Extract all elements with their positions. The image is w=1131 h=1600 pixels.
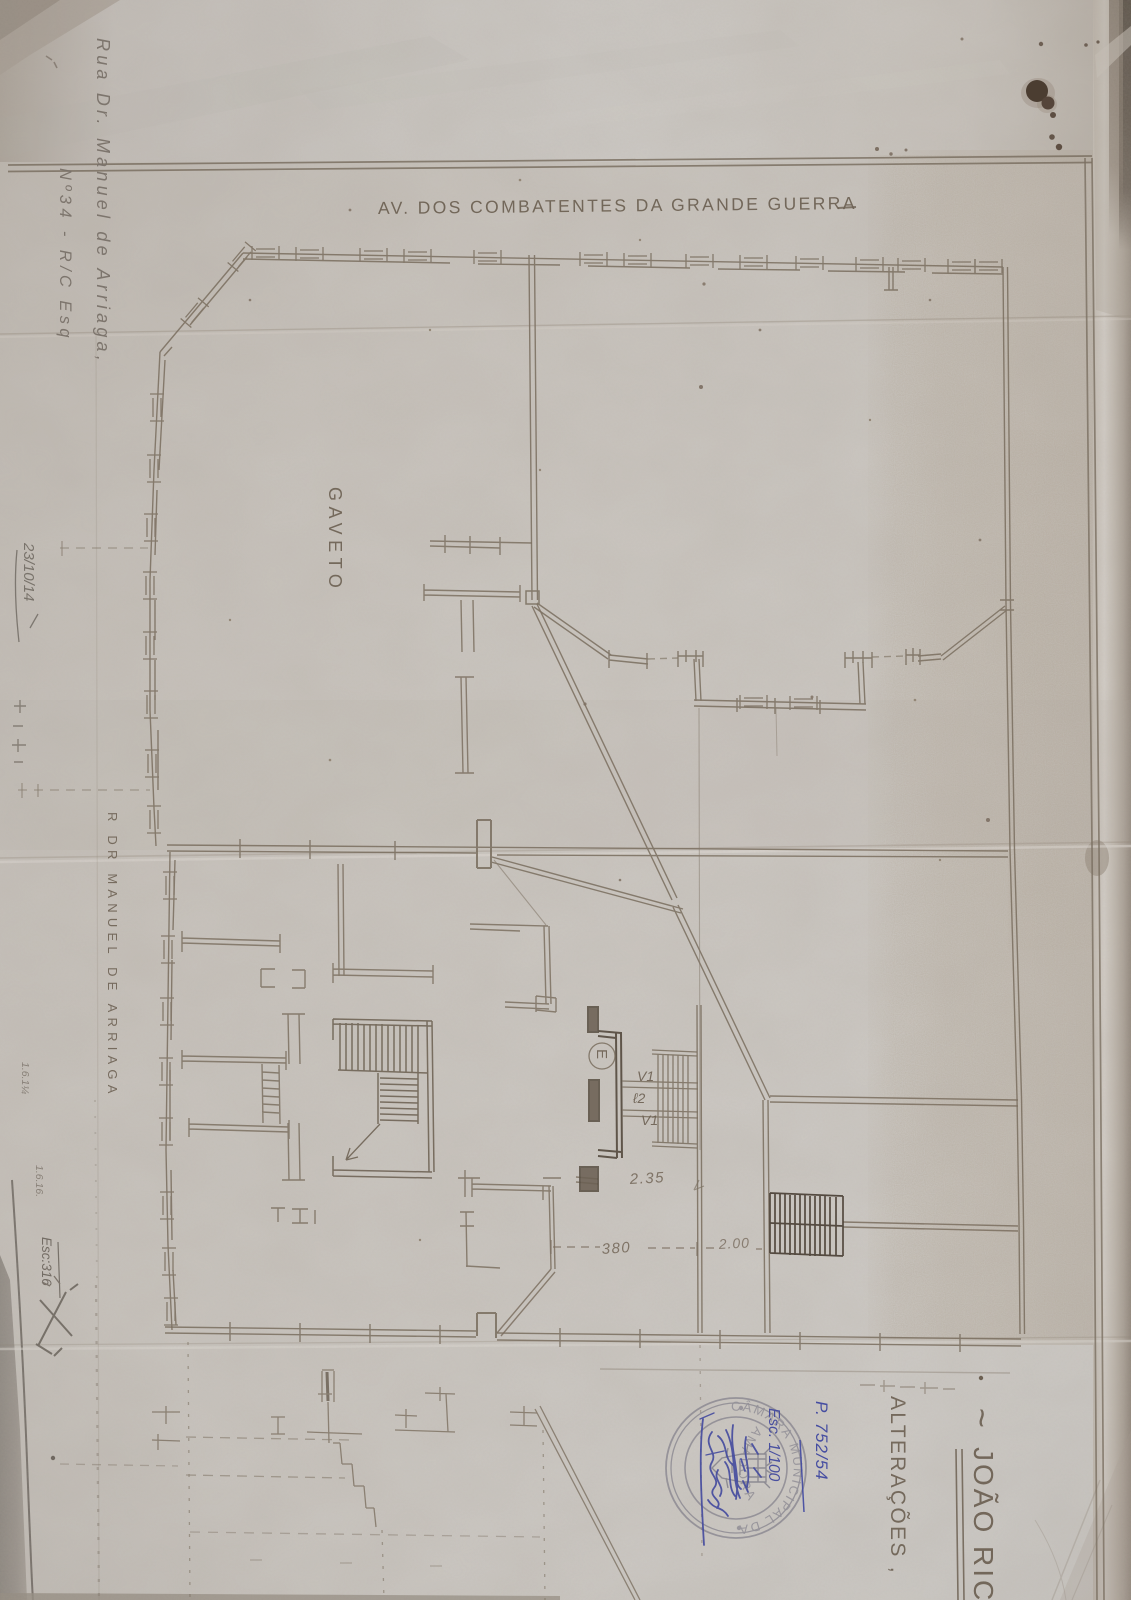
svg-text:1.6.16.: 1.6.16. — [33, 1165, 45, 1197]
svg-text:380: 380 — [601, 1239, 632, 1258]
svg-text:2.00: 2.00 — [717, 1234, 750, 1252]
svg-text:R DR MANUEL DE ARRIAGA: R DR MANUEL DE ARRIAGA — [105, 812, 120, 1099]
svg-text:GAVETO: GAVETO — [325, 487, 345, 593]
svg-text:JOÃO RIC: JOÃO RIC — [968, 1447, 999, 1600]
svg-text:Rua Dr. Manuel de Arriaga,: Rua Dr. Manuel de Arriaga, — [93, 38, 113, 365]
svg-text:2.35: 2.35 — [628, 1169, 665, 1188]
svg-text:~: ~ — [962, 1408, 1000, 1428]
svg-text:Nº34 - R/C Esq: Nº34 - R/C Esq — [56, 168, 74, 342]
svg-text:1.6.1¼: 1.6.1¼ — [19, 1062, 31, 1094]
svg-text:E: E — [593, 1049, 610, 1059]
svg-text:ℓ2: ℓ2 — [632, 1090, 646, 1106]
svg-text:P. 752/54: P. 752/54 — [812, 1401, 831, 1481]
svg-text:Esc. 1/100: Esc. 1/100 — [765, 1408, 782, 1482]
svg-text:V1: V1 — [637, 1068, 654, 1084]
svg-text:Esc:316: Esc:316 — [39, 1237, 54, 1286]
svg-text:V1: V1 — [641, 1112, 658, 1128]
svg-text:ALTERAÇÕES ,: ALTERAÇÕES , — [886, 1396, 910, 1575]
svg-text:23/10/14: 23/10/14 — [20, 542, 37, 601]
